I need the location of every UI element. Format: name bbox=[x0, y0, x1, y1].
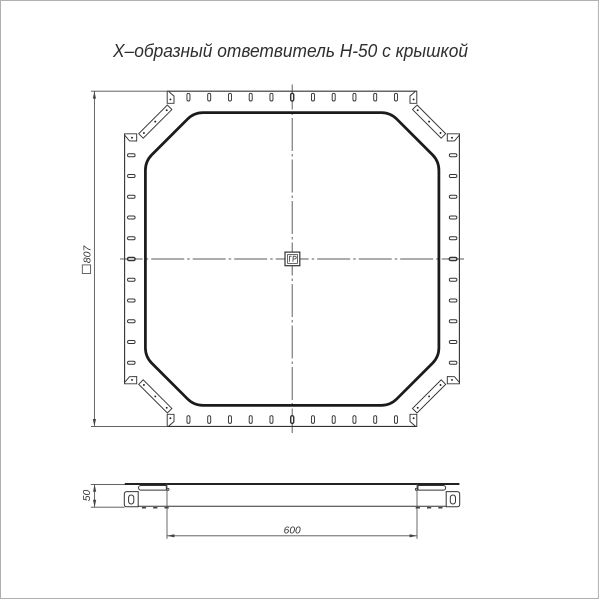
svg-text:807: 807 bbox=[83, 245, 94, 263]
svg-text:Х–образный ответвитель Н-50 с: Х–образный ответвитель Н-50 с крышкой bbox=[112, 41, 468, 61]
svg-text:600: 600 bbox=[284, 526, 301, 537]
svg-text:50: 50 bbox=[82, 489, 93, 501]
